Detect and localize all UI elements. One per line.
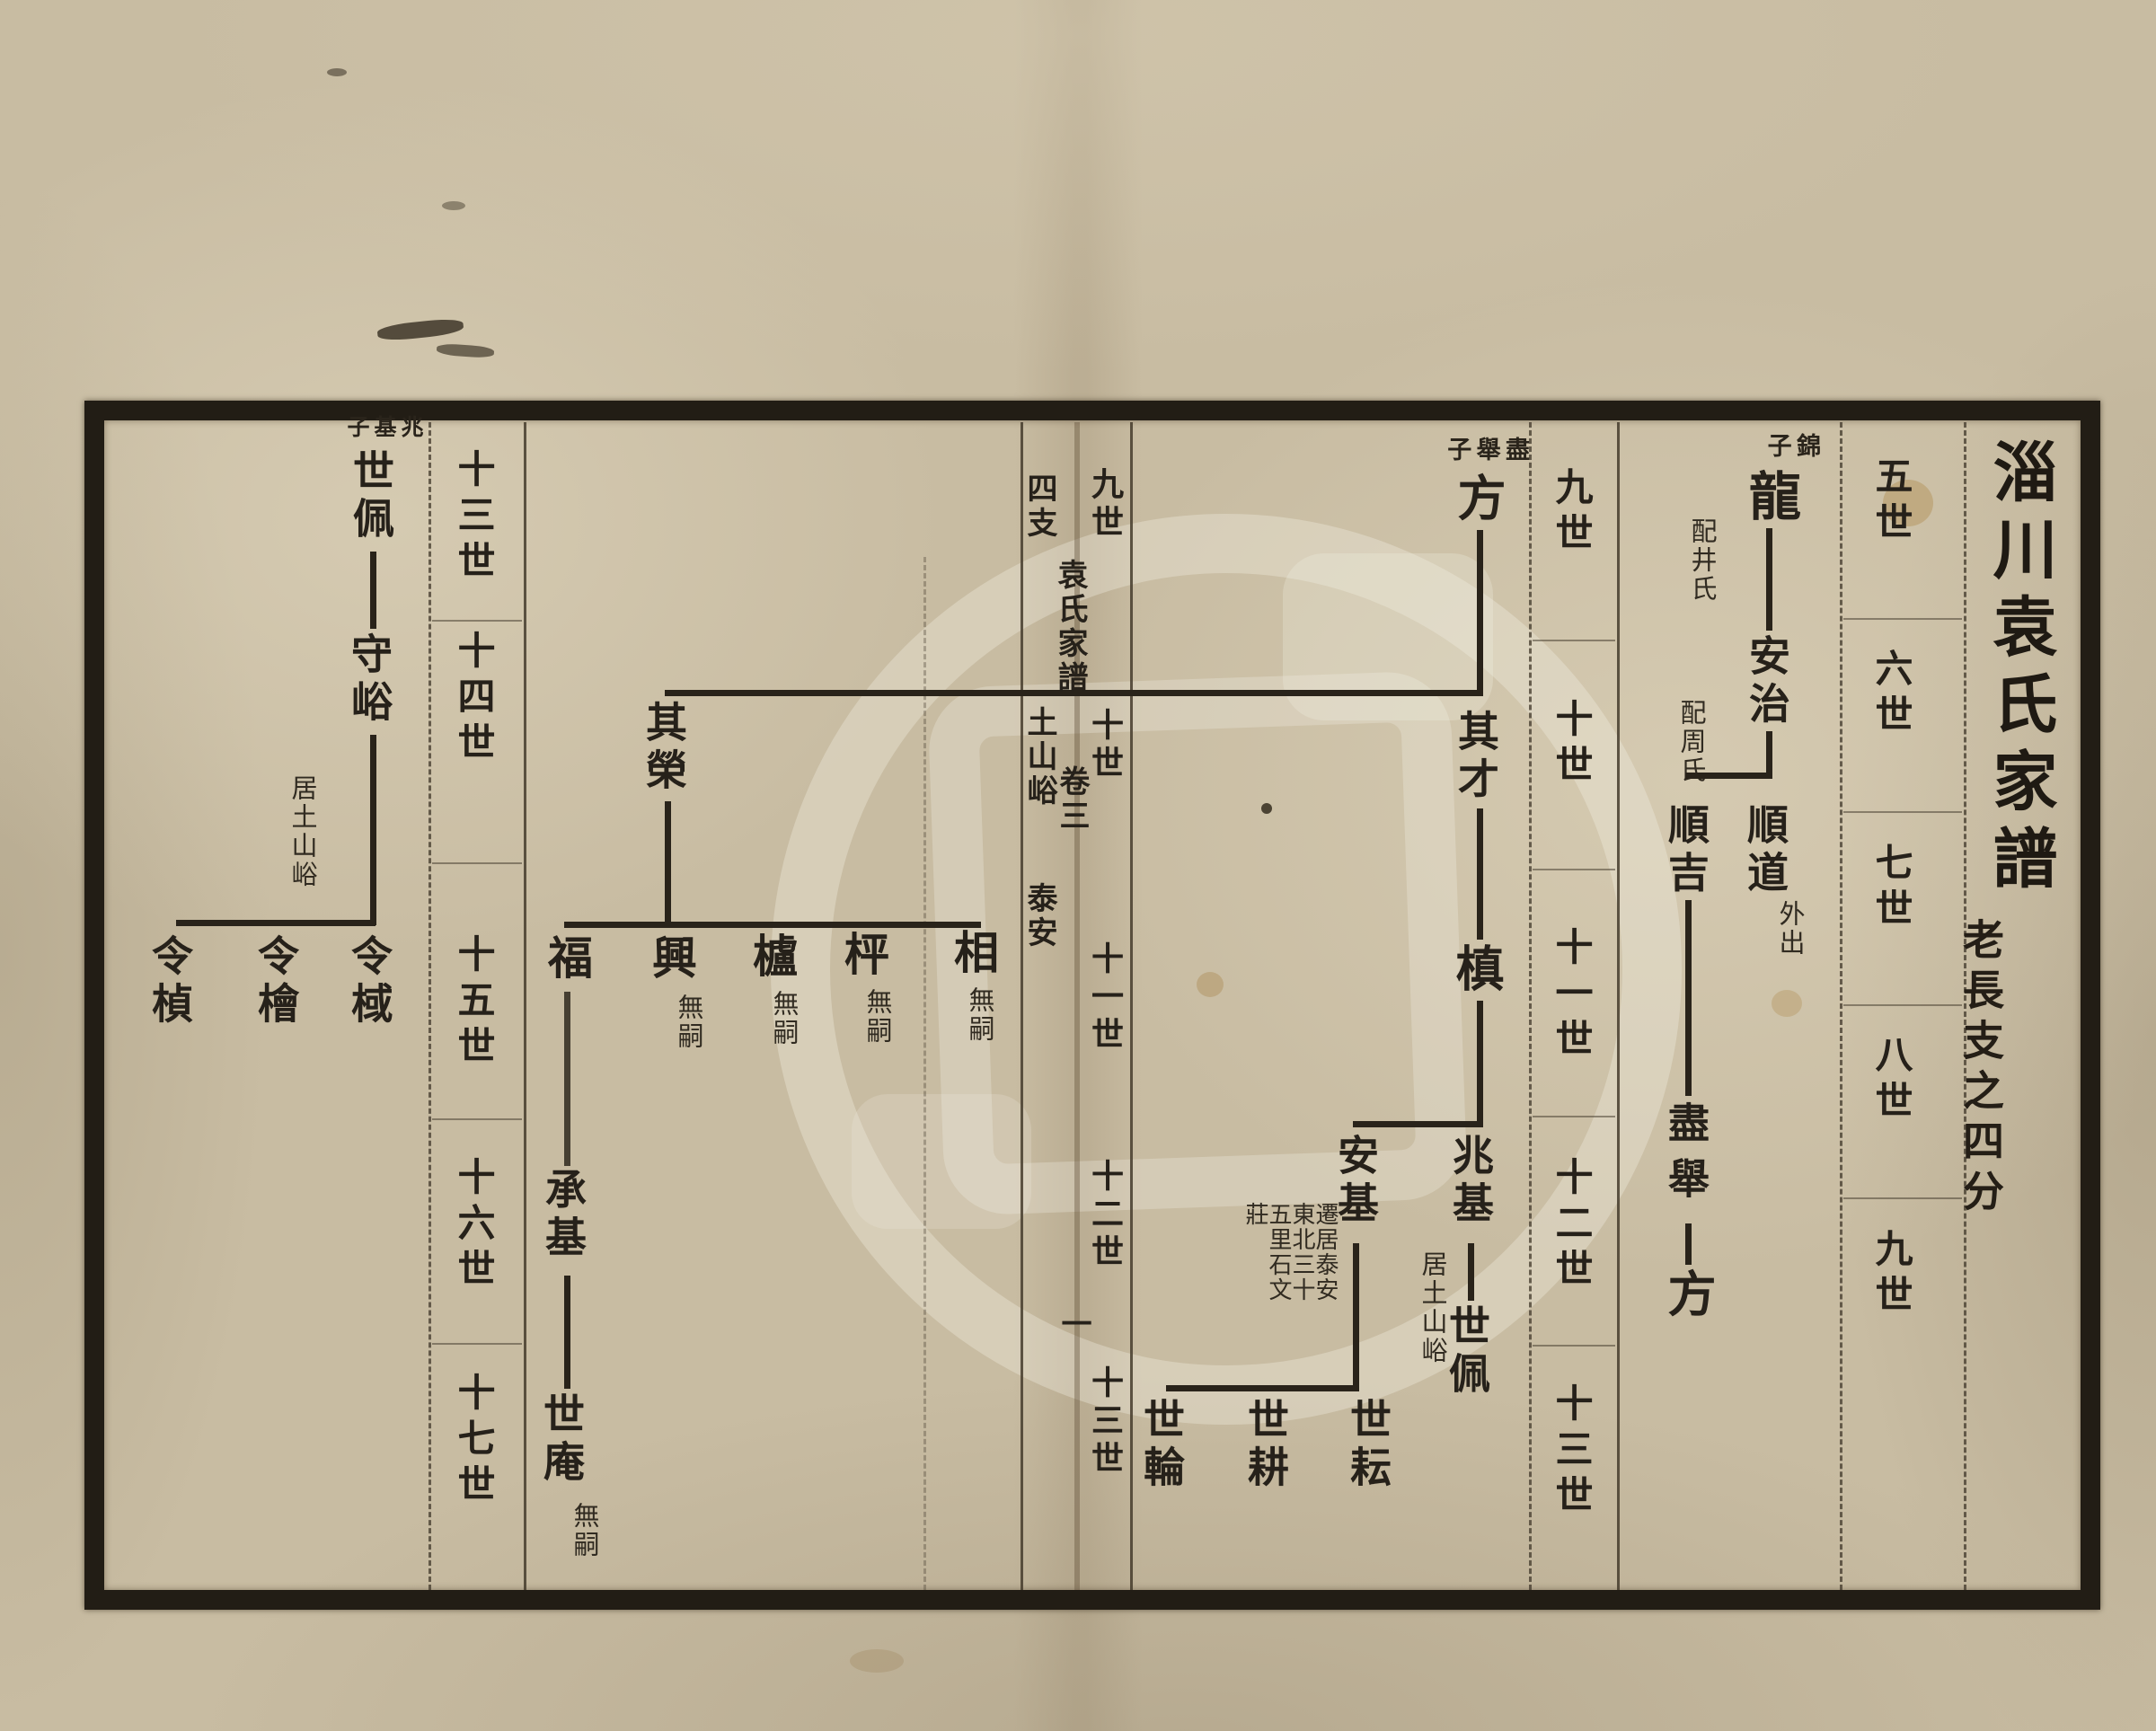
- descent-line: [1477, 1001, 1483, 1125]
- generation-label: 十五世: [455, 934, 492, 1072]
- ancestor-name: 令檜: [255, 934, 296, 1029]
- column-rule: [1617, 422, 1620, 1590]
- ancestor-name: 其才: [1455, 710, 1497, 805]
- column-rule: [524, 422, 526, 1590]
- ancestor-name: 龍: [1745, 469, 1797, 527]
- fold-rule-left: [1021, 422, 1023, 1590]
- no-heir-note: 無嗣: [571, 1502, 597, 1559]
- generation-label: 十一世: [1552, 927, 1590, 1064]
- ink-smudge: [437, 343, 495, 358]
- ancestor-name: 方: [1454, 472, 1502, 527]
- ancestor-name: 其榮: [643, 701, 685, 796]
- sibling-branch-line: [1685, 773, 1772, 779]
- book-title: 淄川袁氏家譜: [1987, 438, 2052, 902]
- descent-line: [1477, 530, 1483, 695]
- descent-line: [564, 1276, 570, 1389]
- ancestor-name: 令棫: [349, 934, 390, 1029]
- fold-book-title: 袁氏家譜: [1055, 559, 1085, 695]
- sibling-branch-line: [1353, 1121, 1483, 1127]
- generation-label: 六世: [1872, 649, 1910, 740]
- ancestor-name: 世輪: [1141, 1398, 1182, 1493]
- sibling-branch-line: [1166, 1385, 1359, 1391]
- generation-separator: [1843, 811, 1962, 813]
- descent-line: [370, 552, 376, 629]
- descent-line: [1766, 528, 1772, 631]
- fold-generation-label: 十二世: [1089, 1159, 1121, 1272]
- sibling-branch-line: [564, 922, 981, 928]
- generation-separator: [432, 1343, 522, 1345]
- ancestor-name: 福: [544, 934, 589, 985]
- generation-label: 八世: [1872, 1035, 1910, 1126]
- descent-line: [1685, 900, 1692, 1096]
- descent-line: [1477, 808, 1483, 940]
- fold-generation-label: 十世: [1089, 708, 1121, 783]
- generation-label: 十四世: [455, 631, 492, 768]
- generation-label: 十世: [1552, 699, 1590, 790]
- generation-label: 十二世: [1552, 1157, 1590, 1294]
- generation-separator: [1533, 869, 1615, 870]
- generation-separator: [1843, 1197, 1962, 1199]
- fold-folio-number: 一: [1058, 1308, 1089, 1342]
- ink-smudge: [442, 201, 465, 210]
- no-heir-note: 無嗣: [864, 988, 890, 1046]
- generation-separator: [432, 620, 522, 622]
- scanned-genealogy-spread: 淄川袁氏家譜 老長支之四分 五世 六世 七世 八世 九世 錦子 龍 配井氏 安治…: [0, 0, 2156, 1731]
- migration-note-line: 莊: [1243, 1202, 1267, 1227]
- paper-stain: [850, 1649, 904, 1673]
- generation-separator: [1843, 1004, 1962, 1006]
- parent-origin-label: 兆基子: [320, 415, 424, 442]
- fold-volume-label: 卷三: [1056, 765, 1087, 834]
- ancestor-name: 枰: [841, 931, 886, 982]
- generation-label: 九世: [1552, 467, 1590, 559]
- ancestor-name: 櫨: [749, 932, 794, 984]
- column-rule: [429, 422, 431, 1590]
- column-rule: [1840, 422, 1842, 1590]
- column-rule: [923, 557, 926, 1590]
- column-rule: [1529, 422, 1532, 1590]
- migration-note-line: 遷居泰安: [1313, 1202, 1337, 1303]
- generation-label: 九世: [1872, 1229, 1910, 1320]
- book-subtitle: 老長支之四分: [1960, 918, 2001, 1220]
- residence-note: 居土山峪: [289, 774, 315, 889]
- descent-line: [1468, 1243, 1474, 1301]
- generation-label: 十七世: [455, 1373, 492, 1510]
- ancestor-name: 世耘: [1347, 1398, 1389, 1493]
- generation-label: 五世: [1872, 456, 1910, 548]
- generation-label: 十六世: [455, 1157, 492, 1294]
- generation-separator: [1533, 1116, 1615, 1117]
- ancestor-name: 安治: [1746, 634, 1788, 729]
- fold-generation-label: 十三世: [1089, 1365, 1121, 1479]
- place-label: 土山峪: [1024, 706, 1055, 808]
- generation-separator: [432, 862, 522, 864]
- sibling-branch-line: [176, 920, 376, 926]
- fold-generation-label: 十一世: [1089, 941, 1121, 1055]
- generation-separator: [432, 1118, 522, 1120]
- descent-line: [1353, 1243, 1359, 1389]
- fold-generation-label: 九世: [1089, 467, 1121, 543]
- ancestor-name: 順道: [1745, 803, 1786, 898]
- descent-line: [564, 992, 570, 1166]
- place-label: 泰安: [1024, 882, 1055, 950]
- residence-note: 居土山峪: [1419, 1250, 1445, 1365]
- descent-line: [1685, 1223, 1692, 1265]
- spouse-note: 配井氏: [1689, 517, 1715, 604]
- generation-separator: [1533, 1345, 1615, 1347]
- generation-label: 十三世: [455, 449, 492, 587]
- ancestor-name: 安基: [1335, 1134, 1376, 1229]
- ancestor-name: 承基: [543, 1168, 584, 1263]
- ancestor-name: 令楨: [149, 934, 190, 1029]
- no-heir-note: 無嗣: [967, 986, 993, 1044]
- left-home-note: 外出: [1777, 900, 1803, 958]
- ancestor-name: 盡舉: [1666, 1101, 1707, 1213]
- generation-label: 十三世: [1552, 1383, 1590, 1521]
- generation-separator: [1843, 618, 1962, 620]
- ancestor-name: 世耕: [1245, 1398, 1286, 1493]
- ink-smudge: [327, 68, 347, 76]
- ancestor-name: 兆基: [1450, 1134, 1491, 1229]
- no-heir-note: 無嗣: [676, 994, 702, 1051]
- ancestor-name: 方: [1664, 1268, 1712, 1323]
- descent-line: [1766, 731, 1772, 776]
- ink-smudge: [376, 317, 464, 342]
- ancestor-name: 世佩: [350, 449, 392, 544]
- migration-note-line: 東北三十: [1290, 1202, 1313, 1303]
- parent-origin-label: 盡舉子: [1407, 437, 1529, 465]
- generation-separator: [1533, 640, 1615, 641]
- migration-note-line: 五里石文: [1267, 1202, 1290, 1303]
- ancestor-name: 世佩: [1446, 1304, 1488, 1400]
- fold-rule-right: [1130, 422, 1133, 1590]
- ancestor-name: 順吉: [1666, 803, 1707, 898]
- generation-label: 七世: [1872, 843, 1910, 934]
- branch-label: 四支: [1024, 472, 1055, 541]
- no-heir-note: 無嗣: [771, 990, 797, 1047]
- descent-line: [665, 801, 671, 925]
- ancestor-name: 相: [950, 929, 995, 980]
- parent-origin-label: 錦子: [1730, 433, 1820, 464]
- ancestor-name: 世庵: [541, 1392, 582, 1488]
- descent-line: [370, 735, 376, 925]
- ancestor-name: 興: [649, 934, 694, 985]
- ancestor-name: 槙: [1452, 943, 1500, 998]
- ancestor-name: 守峪: [349, 632, 390, 728]
